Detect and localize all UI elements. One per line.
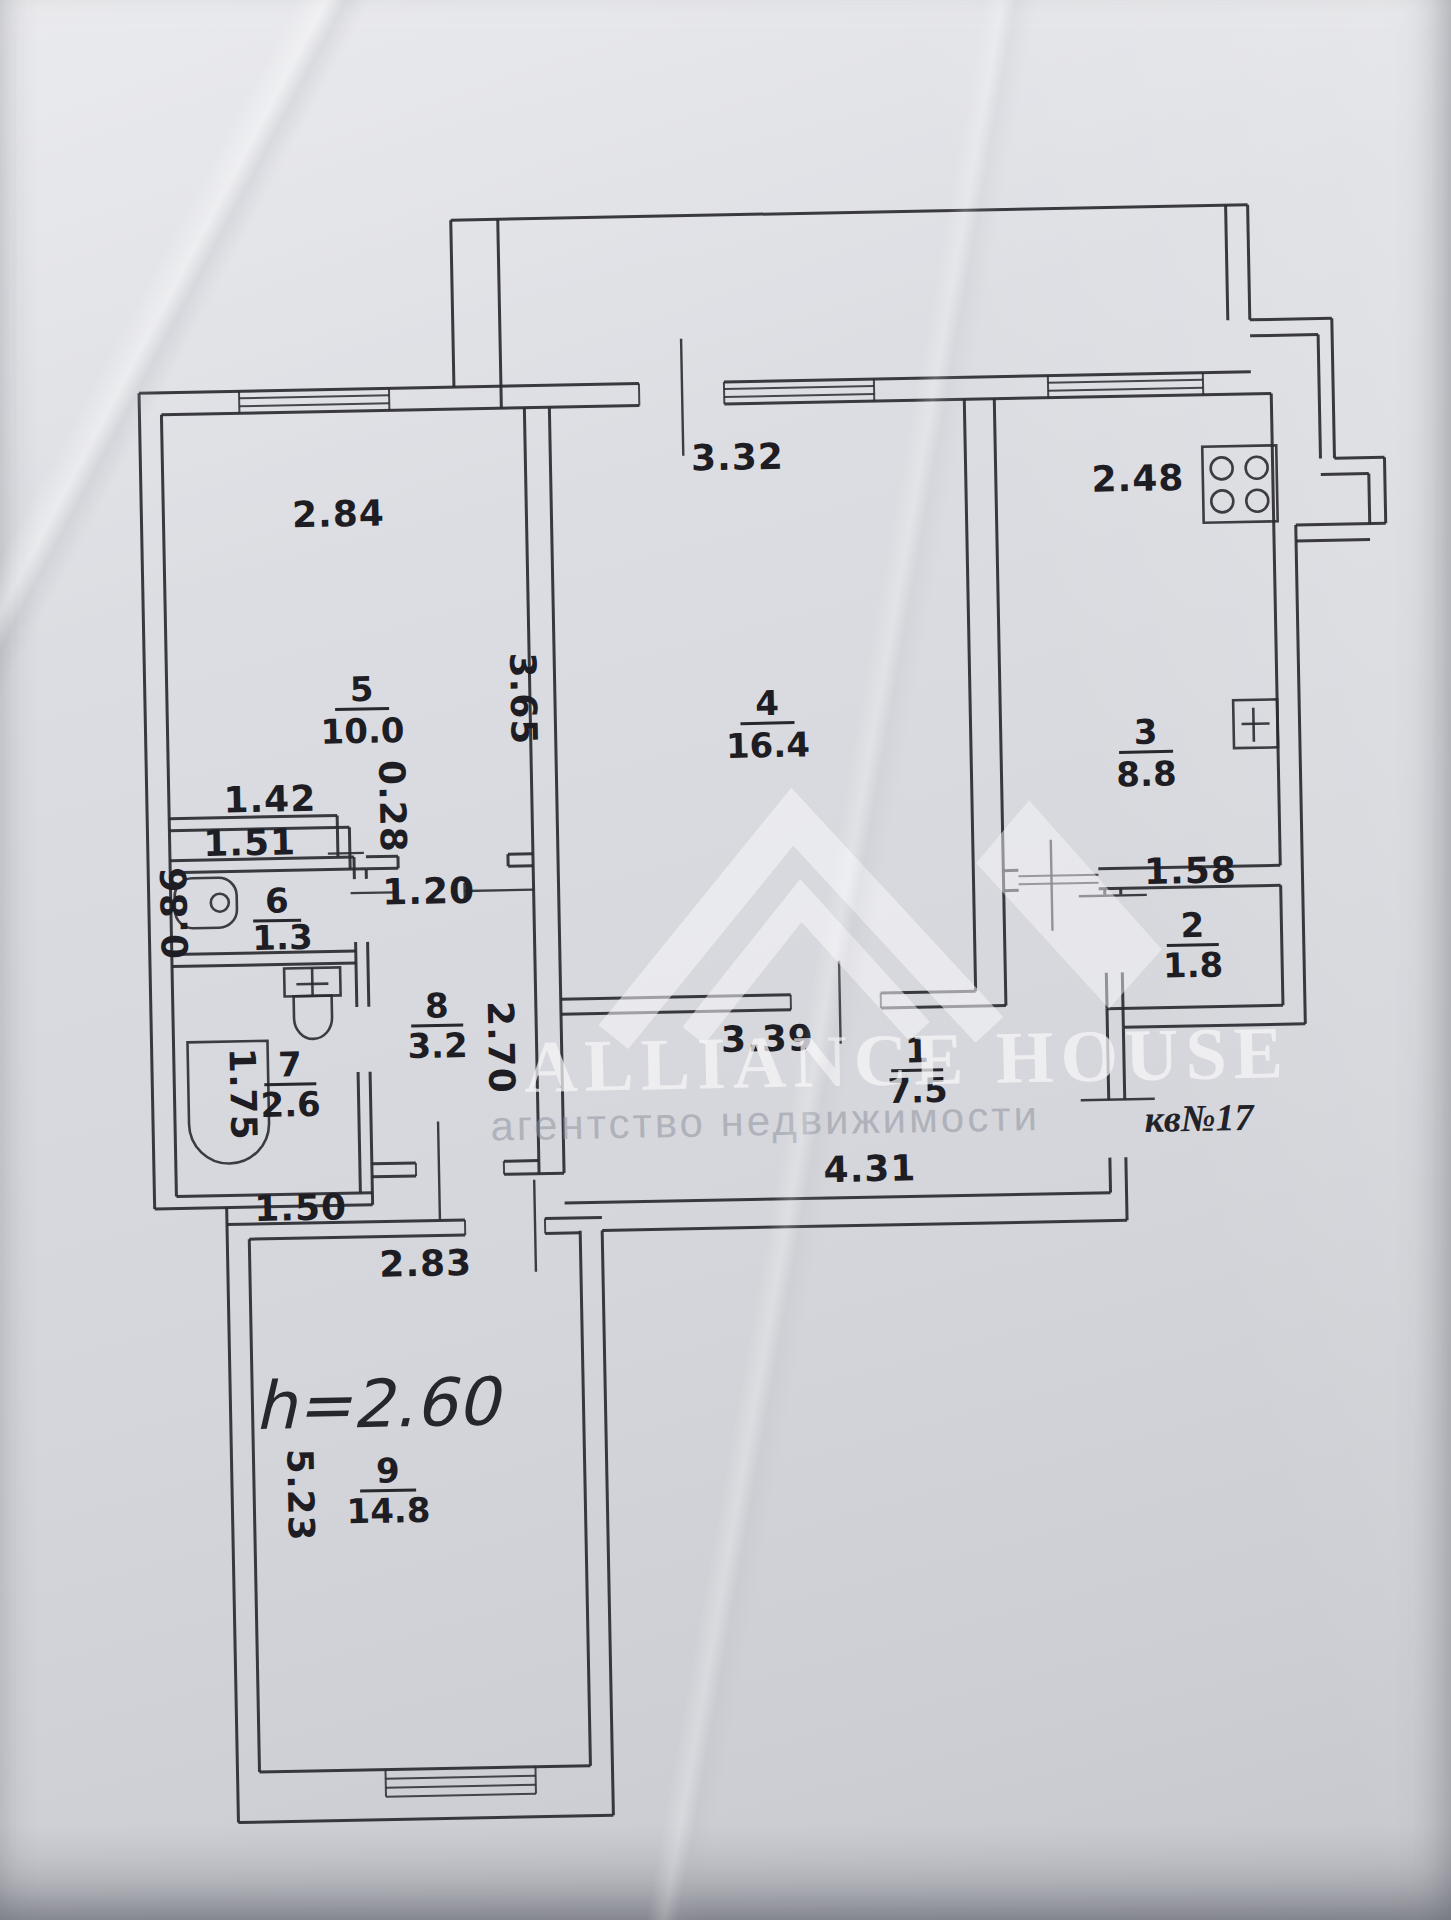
dim-corridor-depth: 2.70	[480, 1001, 523, 1095]
scanned-floor-plan: 2.84 3.32 2.48 3.65 1.42 0.28 1.51 0.86 …	[0, 0, 1451, 1920]
room4-area: 16.4	[726, 724, 811, 766]
room8-number: 8	[425, 985, 449, 1025]
dim-closet-width: 1.58	[1144, 849, 1238, 892]
dim-step-depth: 0.28	[371, 760, 414, 854]
ceiling-height-note: h=2.60	[254, 1363, 505, 1445]
dim-room5-depth: 3.65	[502, 652, 545, 746]
watermark-chevron-outer	[609, 813, 989, 1037]
dim-doorway-width: 1.20	[382, 870, 476, 913]
dim-hall-bottom-width: 4.31	[823, 1147, 917, 1190]
room4-number: 4	[755, 683, 779, 723]
room6-number: 6	[265, 880, 289, 920]
dim-kitchen-width: 2.48	[1091, 457, 1185, 500]
room2-number: 2	[1180, 905, 1204, 945]
room7-number: 7	[278, 1044, 302, 1084]
toilet-icon	[284, 967, 341, 1039]
apartment-number-note: кв№17	[1144, 1096, 1256, 1140]
room3-number: 3	[1133, 712, 1157, 752]
room5-number: 5	[350, 669, 374, 709]
floor-plan-drawing: 2.84 3.32 2.48 3.65 1.42 0.28 1.51 0.86 …	[0, 0, 1451, 1920]
watermark-subtitle: агентство недвижимости	[490, 1092, 1040, 1150]
room9-area: 14.8	[346, 1490, 431, 1532]
right-step-contour	[1250, 317, 1396, 1024]
dim-wc-width: 1.51	[203, 821, 297, 864]
dim-room9-depth: 5.23	[279, 1448, 322, 1542]
room3-area: 8.8	[1116, 753, 1177, 794]
watermark-title: ALLIANCE HOUSE	[523, 1011, 1291, 1108]
dim-bathroom-depth: 1.75	[222, 1047, 265, 1141]
room9-number: 9	[376, 1450, 400, 1490]
dim-room5-width: 2.84	[292, 492, 386, 535]
room6-area: 1.3	[252, 917, 313, 958]
room8-area: 3.2	[407, 1025, 468, 1066]
dim-room9-width: 2.83	[379, 1242, 473, 1285]
room2-area: 1.8	[1163, 944, 1224, 985]
dim-bathroom-width: 1.50	[254, 1186, 348, 1229]
dim-wc-depth: 0.86	[153, 866, 196, 960]
room5-area: 10.0	[320, 710, 405, 752]
dim-niche-width: 1.42	[223, 778, 317, 821]
room7-area: 2.6	[260, 1084, 321, 1125]
dim-room4-width: 3.32	[691, 436, 785, 479]
stove-icon	[1202, 445, 1277, 522]
sink-icon	[1233, 699, 1278, 748]
